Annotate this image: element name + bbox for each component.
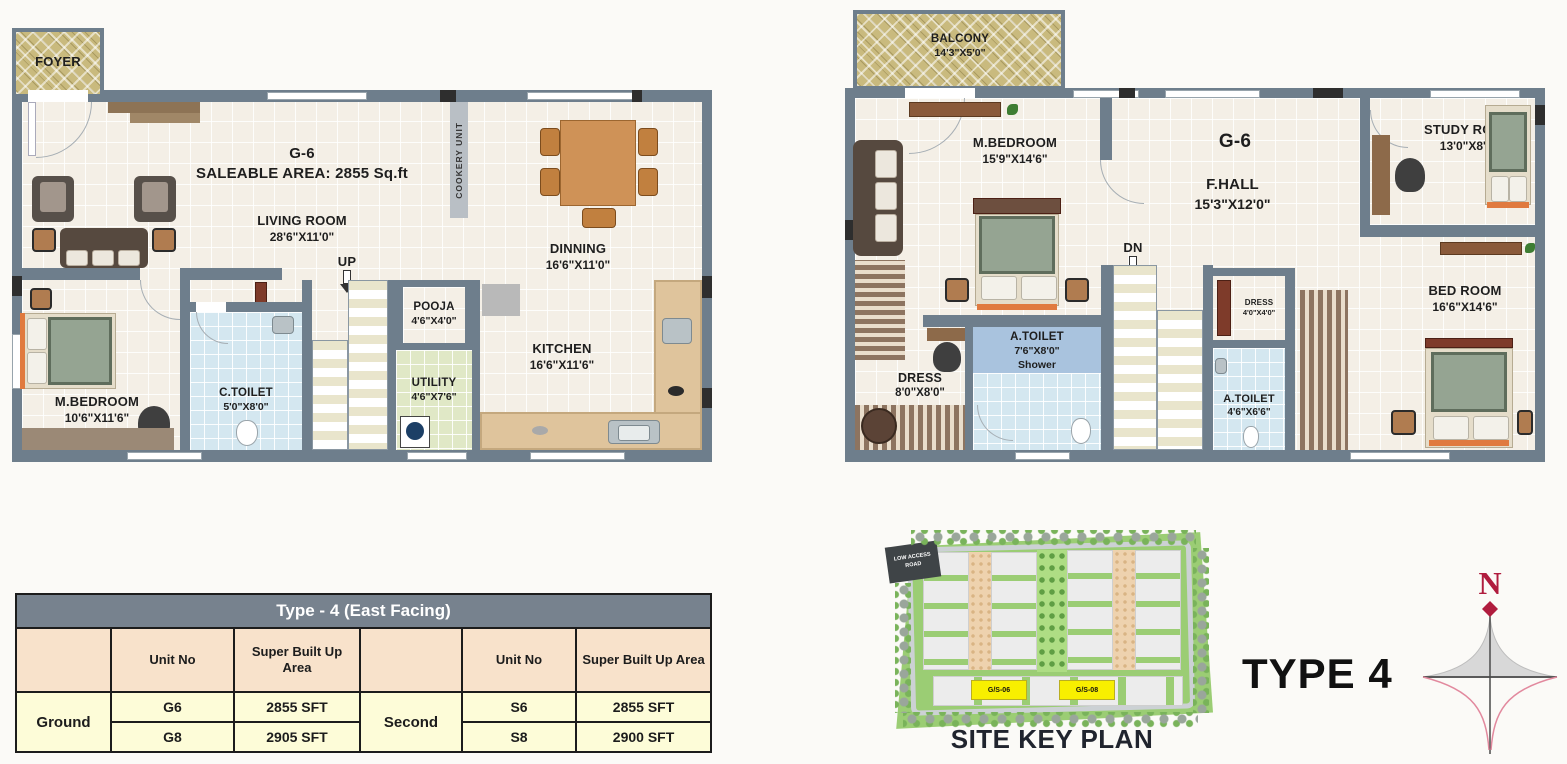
sofa-cushion xyxy=(875,182,897,210)
atoilet2-label: A.TOILET 4'6"X6'6" xyxy=(1211,392,1287,419)
sofa-cushion xyxy=(92,250,114,266)
pillow xyxy=(1491,176,1509,202)
tree-border xyxy=(895,583,911,713)
dining-table xyxy=(560,120,636,206)
access-road-flag: LOW ACCESS ROAD xyxy=(885,541,942,584)
room-dims: 14'3"X5'0" xyxy=(885,47,1035,61)
area-cell: 2855 SFT xyxy=(576,692,711,722)
ground-floor-plan: FOYER G-6 SALEABLE AREA: 2855 Sq.ft LIVI… xyxy=(12,28,712,462)
room-note: Shower xyxy=(975,359,1099,373)
door-jamb xyxy=(1313,88,1343,98)
unit-no-cell: S8 xyxy=(462,722,576,752)
sofa-cushion xyxy=(66,250,88,266)
pillow xyxy=(981,276,1017,300)
wall xyxy=(180,280,190,450)
door-jamb xyxy=(1535,105,1545,125)
stove-knob xyxy=(668,386,684,396)
caption-text: SITE KEY PLAN xyxy=(951,724,1154,754)
room-name: A.TOILET xyxy=(975,330,1099,345)
dining-chair xyxy=(638,168,658,196)
unit-area-label: G-6 SALEABLE AREA: 2855 Sq.ft xyxy=(172,144,432,183)
table-header-area: Super Built Up Area xyxy=(576,628,711,692)
floor-plan-sheet: FOYER G-6 SALEABLE AREA: 2855 Sq.ft LIVI… xyxy=(0,0,1567,764)
toilet-door-gap xyxy=(196,302,226,312)
plant xyxy=(1525,243,1535,253)
fridge xyxy=(482,284,520,316)
table-title: Type - 4 (East Facing) xyxy=(16,594,711,628)
door-leaf xyxy=(28,102,36,156)
tag-text: G/S-06 xyxy=(988,687,1010,694)
window xyxy=(527,92,637,100)
wall xyxy=(923,315,1103,327)
room-name: A.TOILET xyxy=(1211,392,1287,406)
staircase xyxy=(1157,310,1203,450)
balcony-label: BALCONY 14'3"X5'0" xyxy=(885,32,1035,61)
table-header-unit: Unit No xyxy=(111,628,234,692)
room-name: DRESS xyxy=(1235,298,1283,308)
dresser xyxy=(1440,242,1522,255)
staircase xyxy=(312,340,348,450)
window xyxy=(127,452,202,460)
room-name: BED ROOM xyxy=(1390,283,1540,300)
window xyxy=(407,452,467,460)
entry-shelf xyxy=(130,113,200,123)
window xyxy=(530,452,625,460)
unit-no-cell: G8 xyxy=(111,722,234,752)
area-cell: 2855 SFT xyxy=(234,692,360,722)
unit-no-cell: S6 xyxy=(462,692,576,722)
room-name: C.TOILET xyxy=(197,386,295,401)
wall xyxy=(1203,265,1213,450)
dress1-label: DRESS 8'0"X8'0" xyxy=(875,370,965,401)
bedside-stool xyxy=(945,278,969,302)
staircase xyxy=(348,280,388,450)
kitchen-label: KITCHEN 16'6"X11'6" xyxy=(492,341,632,373)
mbedroom-label: M.BEDROOM 15'9"X14'6" xyxy=(935,135,1095,167)
site-key-plan: G/S-06 G/S-08 LOW ACCESS ROAD xyxy=(893,528,1213,733)
room-dims: 4'6"X6'6" xyxy=(1211,406,1287,419)
room-name: KITCHEN xyxy=(492,341,632,358)
wall xyxy=(388,280,396,450)
door-jamb xyxy=(632,90,642,102)
pillow xyxy=(1473,416,1509,440)
access-road-text: LOW ACCESS ROAD xyxy=(892,552,934,573)
cookery-unit-label: COOKERY UNIT xyxy=(454,122,464,199)
sofa-cushion xyxy=(118,250,140,266)
highlight-unit-tag: G/S-06 xyxy=(971,680,1027,700)
stairs-text: DN xyxy=(1113,240,1153,257)
room-dims: 16'6"X11'6" xyxy=(492,358,632,374)
bed-rug xyxy=(1429,440,1509,446)
window xyxy=(1430,90,1520,98)
corner-table xyxy=(861,408,897,444)
compass-north-letter: N xyxy=(1478,565,1501,601)
dining-chair xyxy=(540,128,560,156)
dress2-label: DRESS 4'0"X4'0" xyxy=(1235,298,1283,318)
second-floor-plan: BALCONY 14'3"X5'0" M.BEDROOM 15'9"X14'6" xyxy=(845,10,1545,462)
stairs-dn-label: DN xyxy=(1113,240,1153,257)
pillow xyxy=(27,318,47,350)
atoilet1-label: A.TOILET 7'6"X8'0" Shower xyxy=(975,330,1099,372)
room-name: LIVING ROOM xyxy=(212,213,392,230)
tree-border xyxy=(911,530,1196,546)
courtyard-path xyxy=(969,552,991,670)
saleable-area: SALEABLE AREA: 2855 Sq.ft xyxy=(172,164,432,184)
wardrobe xyxy=(855,260,905,360)
sofa-cushion xyxy=(875,214,897,242)
unit-label: G-6 xyxy=(1185,130,1285,155)
bedside-stool xyxy=(30,288,52,310)
armchair-seat xyxy=(40,182,66,212)
dinning-label: DINNING 16'6"X11'0" xyxy=(508,241,648,273)
fhall-label: F.HALL 15'3"X12'0" xyxy=(1155,175,1310,213)
garden-strip xyxy=(1037,550,1067,672)
side-table xyxy=(32,228,56,252)
bedroom-label: BED ROOM 16'6"X14'6" xyxy=(1390,283,1540,315)
room-dims: 16'6"X11'0" xyxy=(508,258,648,274)
table-header-area: Super Built Up Area xyxy=(234,628,360,692)
utility-label: UTILITY 4'6"X7'6" xyxy=(396,376,472,405)
wash-basin xyxy=(272,316,294,334)
pillow xyxy=(1021,276,1057,300)
toilet-seat xyxy=(1243,426,1259,448)
foyer-label: FOYER xyxy=(20,54,96,71)
compass-curve-left xyxy=(1423,677,1489,750)
wardrobe xyxy=(22,428,174,450)
window xyxy=(1350,452,1450,460)
washing-machine-door xyxy=(406,422,424,440)
type-title-text: TYPE 4 xyxy=(1242,650,1393,697)
stairs-up-label: UP xyxy=(327,254,367,271)
door-jamb xyxy=(12,276,22,296)
pooja-label: POOJA 4'6"X4'0" xyxy=(398,300,470,329)
bedside-stool xyxy=(1391,410,1416,435)
wall xyxy=(22,268,140,280)
dining-chair xyxy=(582,208,616,228)
side-table xyxy=(152,228,176,252)
room-name: DRESS xyxy=(875,370,965,386)
wall xyxy=(1101,265,1113,450)
staircase xyxy=(1113,265,1157,450)
room-name: F.HALL xyxy=(1155,175,1310,195)
office-chair xyxy=(1395,158,1425,192)
wall xyxy=(302,280,312,450)
courtyard-path xyxy=(1113,550,1135,670)
tag-text: G/S-08 xyxy=(1076,687,1098,694)
bedside-stool xyxy=(1517,410,1533,435)
dining-chair xyxy=(638,128,658,156)
entry-door-gap xyxy=(28,90,88,102)
tree-border xyxy=(1193,548,1209,713)
building-block xyxy=(1067,550,1113,670)
office-chair xyxy=(933,342,961,372)
counter-oval xyxy=(532,426,548,435)
entry-shelf xyxy=(108,102,200,113)
room-dims: 5'0"X8'0" xyxy=(197,401,295,415)
toilet-seat xyxy=(1071,418,1091,444)
table-header-blank xyxy=(360,628,462,692)
sofa-cushion xyxy=(875,150,897,178)
cot-rug xyxy=(1487,202,1529,208)
room-dims: 16'6"X14'6" xyxy=(1390,300,1540,316)
wall xyxy=(180,268,282,280)
plant xyxy=(1007,104,1018,115)
wall xyxy=(1535,88,1545,462)
balcony-door-gap xyxy=(905,88,975,98)
dining-chair xyxy=(540,168,560,196)
wall xyxy=(472,280,480,450)
living-room-label: LIVING ROOM 28'6"X11'0" xyxy=(212,213,392,245)
window xyxy=(1165,90,1260,98)
floor-group-label: Second xyxy=(360,692,462,752)
room-dims: 28'6"X11'0" xyxy=(212,230,392,246)
bed-duvet xyxy=(48,317,112,385)
wall xyxy=(1285,268,1295,450)
unit-area-table: Type - 4 (East Facing) Unit No Super Bui… xyxy=(15,593,712,753)
window xyxy=(267,92,367,100)
tv-cabinet xyxy=(973,198,1061,214)
wall xyxy=(1360,225,1545,237)
bed-duvet xyxy=(1431,352,1507,412)
door-jamb xyxy=(702,388,712,408)
pillow xyxy=(1433,416,1469,440)
bed-headboard xyxy=(1425,338,1513,348)
room-name: DINNING xyxy=(508,241,648,258)
door-jamb xyxy=(440,90,456,102)
armchair-seat xyxy=(142,182,168,212)
room-dims: 4'6"X7'6" xyxy=(396,391,472,405)
unit-number: G-6 xyxy=(172,144,432,164)
room-name: POOJA xyxy=(398,300,470,315)
ctoilet-label: C.TOILET 5'0"X8'0" xyxy=(197,386,295,415)
building-block xyxy=(991,552,1037,670)
wardrobe xyxy=(1300,290,1348,450)
sink-bowl xyxy=(618,425,650,441)
wash-basin xyxy=(1215,358,1227,374)
toilet-seat xyxy=(236,420,258,446)
room-dims: 4'6"X4'0" xyxy=(398,315,470,329)
compass-diamond xyxy=(1482,601,1498,617)
door-jamb xyxy=(1119,88,1135,98)
compass-curve-right xyxy=(1491,677,1557,750)
wall xyxy=(1213,340,1285,348)
wall xyxy=(1210,268,1292,276)
area-cell: 2900 SFT xyxy=(576,722,711,752)
kitchen-counter xyxy=(480,412,702,450)
wall xyxy=(1100,98,1112,160)
room-dims: 8'0"X8'0" xyxy=(875,386,965,401)
stairs-text: UP xyxy=(327,254,367,271)
room-name: M.BEDROOM xyxy=(935,135,1095,152)
cookery-unit: COOKERY UNIT xyxy=(450,102,468,218)
dresser xyxy=(909,102,1001,117)
room-name: UTILITY xyxy=(396,376,472,391)
building-block xyxy=(1135,550,1181,670)
pillow xyxy=(1509,176,1527,202)
bed-rug xyxy=(20,313,25,389)
room-dims: 15'9"X14'6" xyxy=(935,152,1095,168)
wall xyxy=(1360,98,1370,228)
room-dims: 4'0"X4'0" xyxy=(1235,308,1283,318)
site-key-plan-caption: SITE KEY PLAN xyxy=(902,724,1202,755)
bed-duvet xyxy=(979,216,1055,274)
north-compass: N xyxy=(1420,562,1560,757)
floor-group-label: Ground xyxy=(16,692,111,752)
table-header-unit: Unit No xyxy=(462,628,576,692)
room-name: FOYER xyxy=(20,54,96,71)
wardrobe-unit xyxy=(1217,280,1231,336)
room-dims: 7'6"X8'0" xyxy=(975,345,1099,359)
area-cell: 2905 SFT xyxy=(234,722,360,752)
table-header-blank xyxy=(16,628,111,692)
type-title: TYPE 4 xyxy=(1242,650,1402,698)
unit-no-cell: G6 xyxy=(111,692,234,722)
unit-number: G-6 xyxy=(1185,130,1285,155)
window xyxy=(1015,452,1070,460)
desk xyxy=(927,328,965,341)
counter-sink xyxy=(662,318,692,344)
door-jamb xyxy=(702,276,712,298)
room-dims: 15'3"X12'0" xyxy=(1155,195,1310,213)
room-name: BALCONY xyxy=(885,32,1035,47)
bedside-stool xyxy=(1065,278,1089,302)
wall xyxy=(965,327,973,450)
highlight-unit-tag: G/S-08 xyxy=(1059,680,1115,700)
pillow xyxy=(27,352,47,384)
study-desk xyxy=(1372,135,1390,215)
bed-rug xyxy=(977,304,1057,310)
study-cot-duvet xyxy=(1489,112,1527,172)
